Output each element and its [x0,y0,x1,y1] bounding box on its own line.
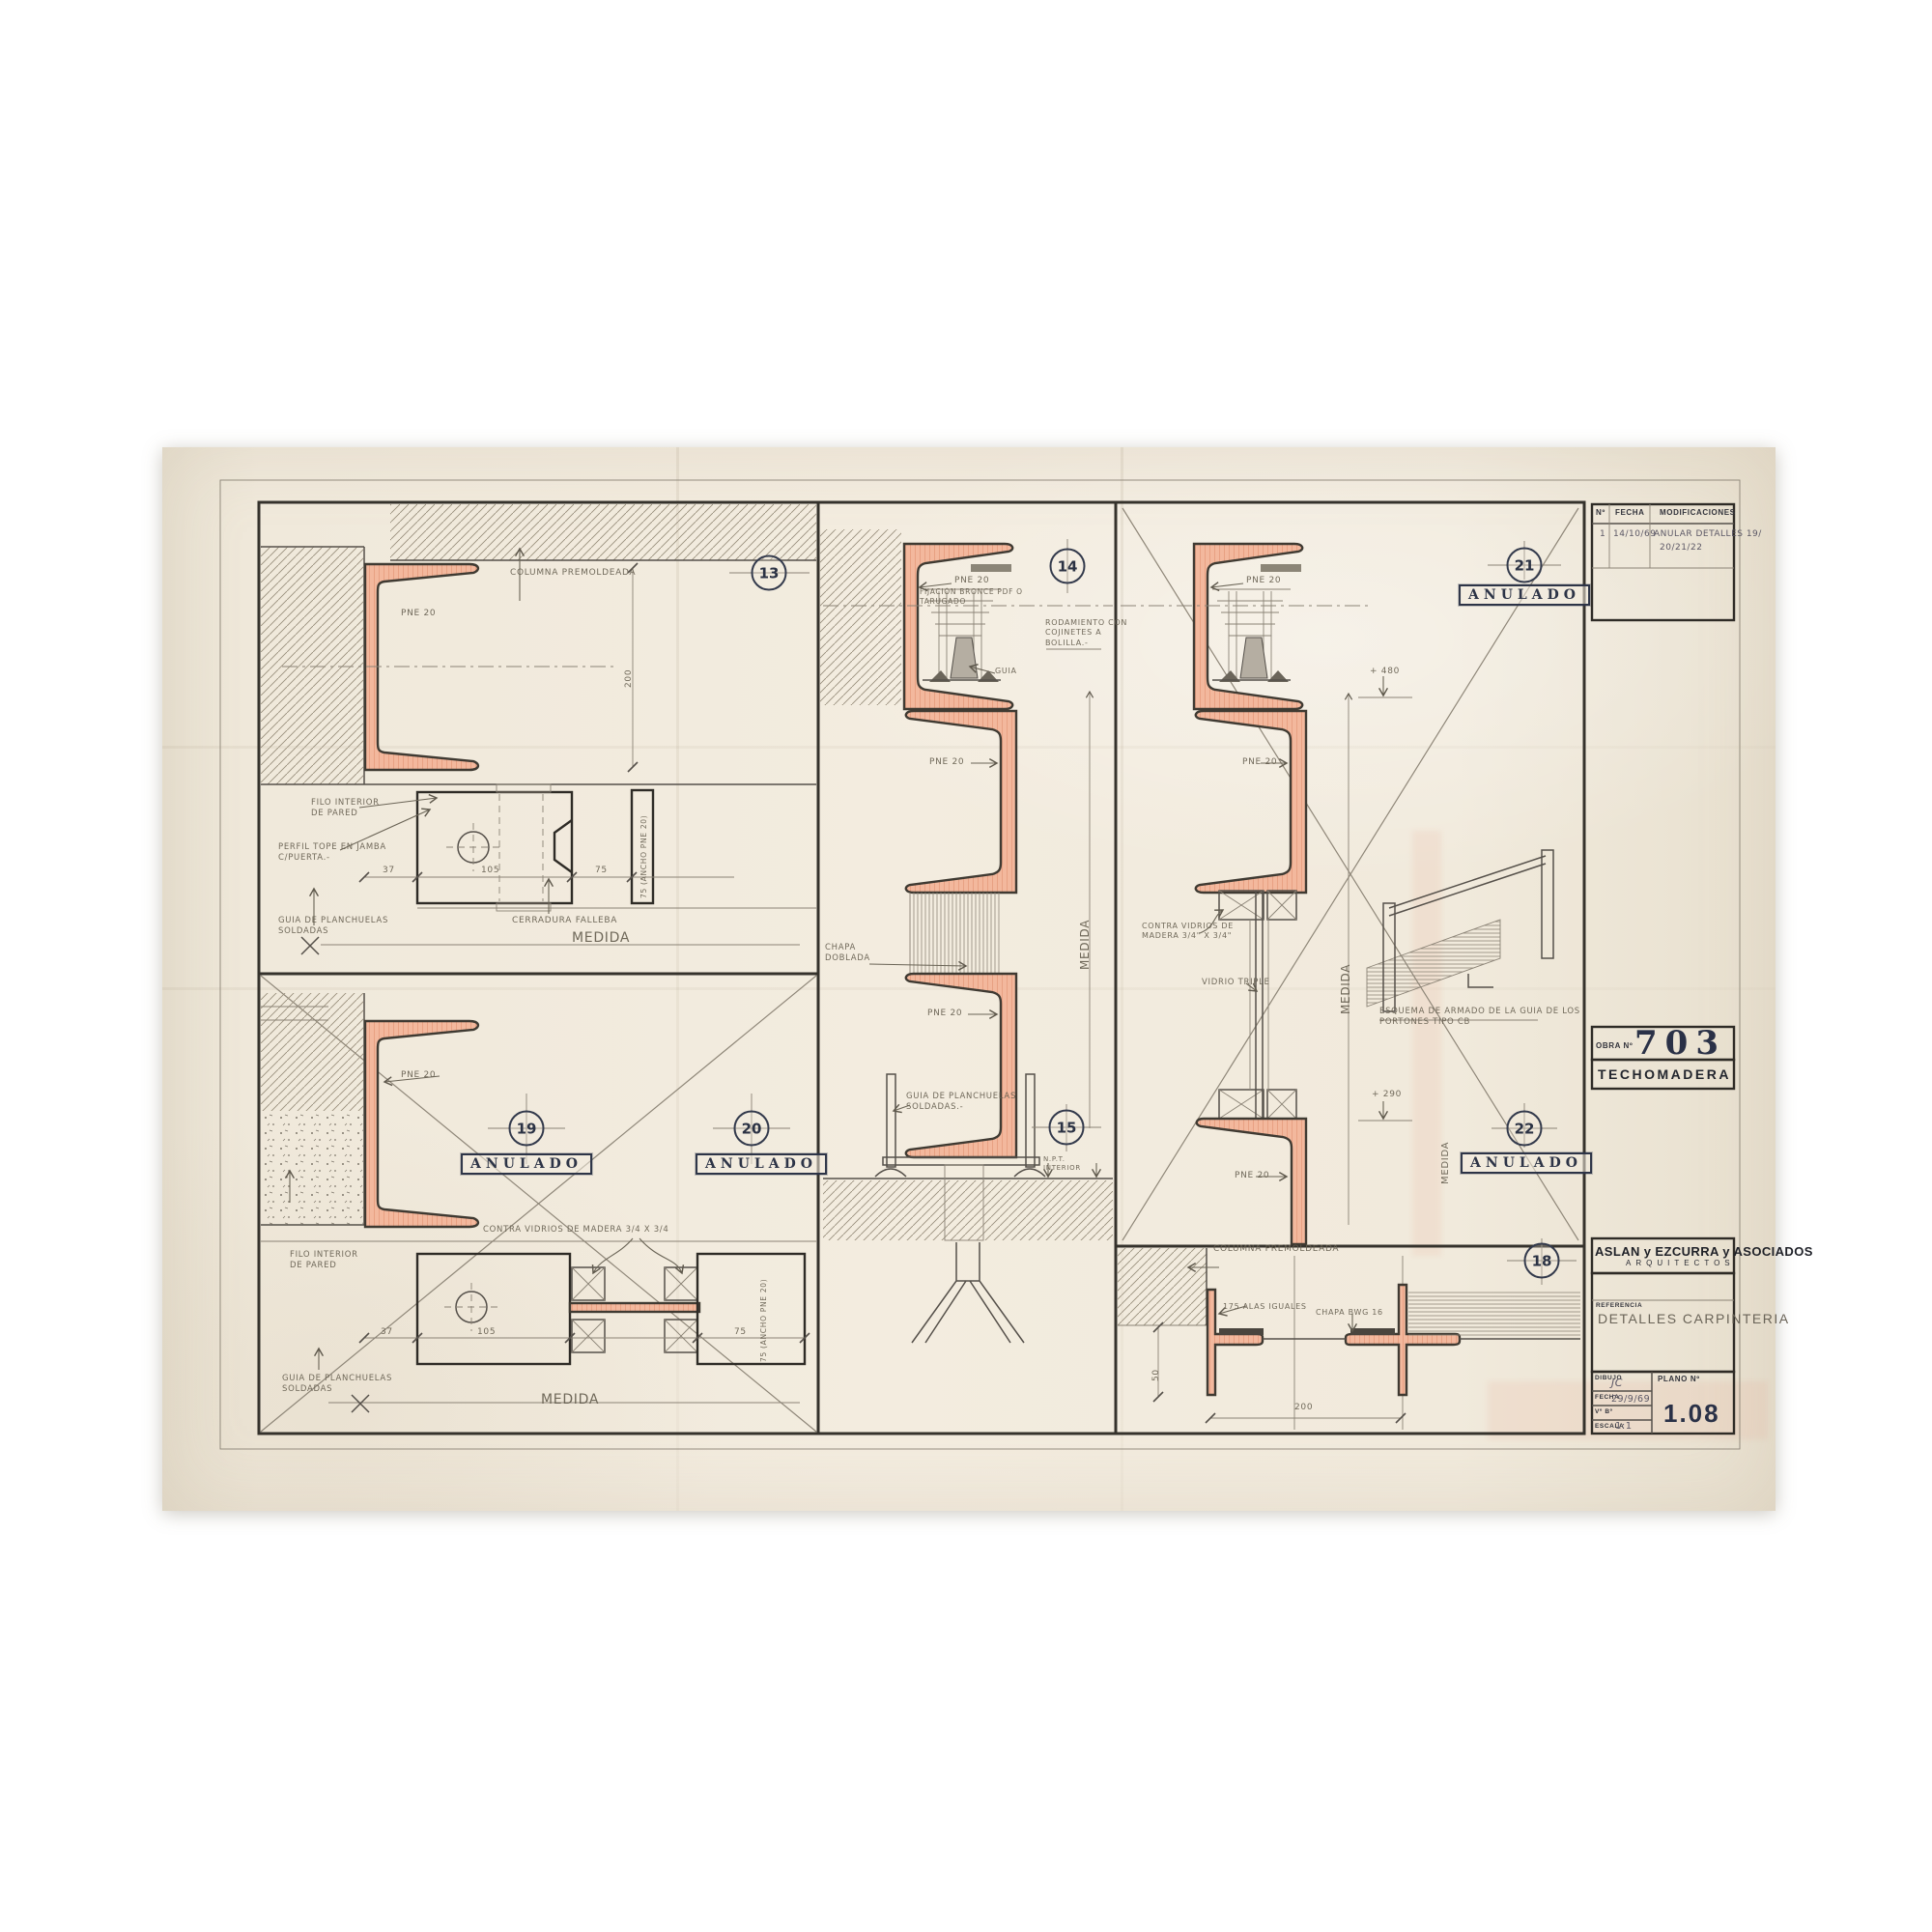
drawing-label: COLUMNA PREMOLDEADA [1213,1244,1339,1256]
drawing-label: MEDIDA [1439,1142,1452,1184]
drawing-label: MEDIDA [572,929,630,947]
obra-label: OBRA Nº [1596,1041,1633,1050]
detail-marker-13: 13 [752,555,787,591]
drawing-label: 105 [477,1327,496,1339]
drawing-label: CHAPA BWG 16 [1316,1308,1383,1318]
drawing-label: CONTRA VIDRIOS DE MADERA 3/4 X 3/4 [483,1225,668,1236]
drawing-label: GUIA DE PLANCHUELAS SOLDADAS [282,1374,392,1395]
firm-subtitle: ARQUITECTOS [1626,1259,1735,1267]
plano-label: PLANO Nº [1658,1375,1700,1383]
drawing-label: PNE 20 [954,576,989,587]
drawing-label: + 290 [1372,1090,1402,1101]
drawing-label: FILO INTERIOR DE PARED [311,798,380,819]
vobo-label: Vº Bº [1595,1408,1613,1415]
drawing-label: 37 [383,866,395,877]
drawing-label: 75 (ANCHO PNE 20) [639,815,649,898]
drawing-label: 105 [481,866,499,877]
title-block-linework [1592,504,1734,1434]
drawing-label: 37 [381,1327,393,1339]
referencia-value: DETALLES CARPINTERIA [1598,1311,1790,1326]
anulado-stamp: ANULADO [1459,584,1590,606]
drawing-label: 50 [1151,1369,1163,1381]
drawing-label: 75 [734,1327,747,1339]
anulado-stamp: ANULADO [696,1153,827,1175]
drawing-label: PNE 20 [401,609,436,620]
drawing-label: PNE 20 [1246,576,1281,587]
drawing-label: PNE 20 [927,1009,962,1020]
detail-marker-15: 15 [1049,1110,1085,1146]
drawing-label: FIJACIÓN BRONCE PDF O TARUGADO [920,587,1023,607]
firm-name: ASLAN y EZCURRA y ASOCIADOS [1595,1244,1813,1259]
referencia-label: REFERENCIA [1596,1302,1642,1309]
drawing-label: GUIA [995,667,1017,676]
drawing-label: 75 (ANCHO PNE 20) [759,1279,769,1362]
drawing-label: FILO INTERIOR DE PARED [290,1250,358,1271]
drawing-label: 75 [595,866,608,877]
drawing-label: PNE 20 [1242,757,1277,769]
dibujo-value: JC [1611,1377,1623,1389]
drawing-label: GUIA DE PLANCHUELAS SOLDADAS.- [906,1092,1016,1113]
drawing-label: VIDRIO TRIPLE [1202,978,1270,988]
drawing-label: 175 ALAS IGUALES [1223,1302,1307,1312]
detail-marker-19: 19 [509,1111,545,1147]
drawing-label: N.P.T. INTERIOR [1043,1155,1081,1173]
drawing-label: GUIA DE PLANCHUELAS SOLDADAS [278,916,388,937]
drawing-label: PNE 20 [1235,1171,1269,1182]
detail-14-15-linework [820,529,1113,1343]
scanned-blueprint-sheet: COLUMNA PREMOLDEADAPNE 20200FILO INTERIO… [0,0,1932,1932]
mods-col-fecha: FECHA [1615,508,1645,517]
mods-entry-fecha: 14/10/69 [1613,529,1656,539]
drawing-label: + 480 [1370,667,1400,678]
mods-entry-text-1: ANULAR DETALLES 19/ [1654,529,1762,539]
detail-marker-18: 18 [1524,1243,1560,1279]
drawing-label: ESQUEMA DE ARMADO DE LA GUIA DE LOS PORT… [1379,1007,1580,1028]
drawing-label: RODAMIENTO CON COJINETES A BOLILLA.- [1045,618,1127,648]
drawing-label: MEDIDA [541,1391,599,1408]
drawing-linework [0,0,1932,1932]
obra-number: 703 [1634,1024,1726,1063]
detail-marker-14: 14 [1050,549,1086,584]
mods-entry-text-2: 20/21/22 [1660,543,1702,553]
fecha-value: 29/9/69 [1611,1394,1650,1405]
drawing-label: 200 [624,669,636,688]
drawing-label: PNE 20 [401,1070,436,1082]
mods-col-modificaciones: MODIFICACIONES [1660,508,1736,517]
anulado-stamp: ANULADO [461,1153,592,1175]
detail-marker-22: 22 [1507,1111,1543,1147]
drawing-label: PNE 20 [929,757,964,769]
drawing-label: CHAPA DOBLADA [825,943,870,964]
anulado-stamp: ANULADO [1461,1152,1592,1174]
obra-name: TECHOMADERA [1598,1066,1731,1082]
drawing-label: MEDIDA [1078,920,1094,970]
escala-value: 1:1 [1615,1421,1633,1432]
detail-marker-20: 20 [734,1111,770,1147]
detail-18-linework [1118,1238,1580,1430]
drawing-label: COLUMNA PREMOLDEADA [510,568,636,580]
mods-col-no: Nº [1596,508,1605,517]
mods-entry-no: 1 [1600,529,1605,539]
drawing-label: 200 [1294,1403,1313,1414]
detail-marker-21: 21 [1507,548,1543,583]
detail-19-20-linework [261,976,816,1432]
drawing-label: CERRADURA FALLEBA [512,916,617,927]
drawing-label: CONTRA VIDRIOS DE MADERA 3/4" X 3/4" [1142,922,1234,942]
drawing-label: MEDIDA [1339,964,1354,1014]
drawing-label: PERFIL TOPE EN JAMBA C/PUERTA.- [278,842,386,864]
plano-number: 1.08 [1663,1399,1720,1429]
